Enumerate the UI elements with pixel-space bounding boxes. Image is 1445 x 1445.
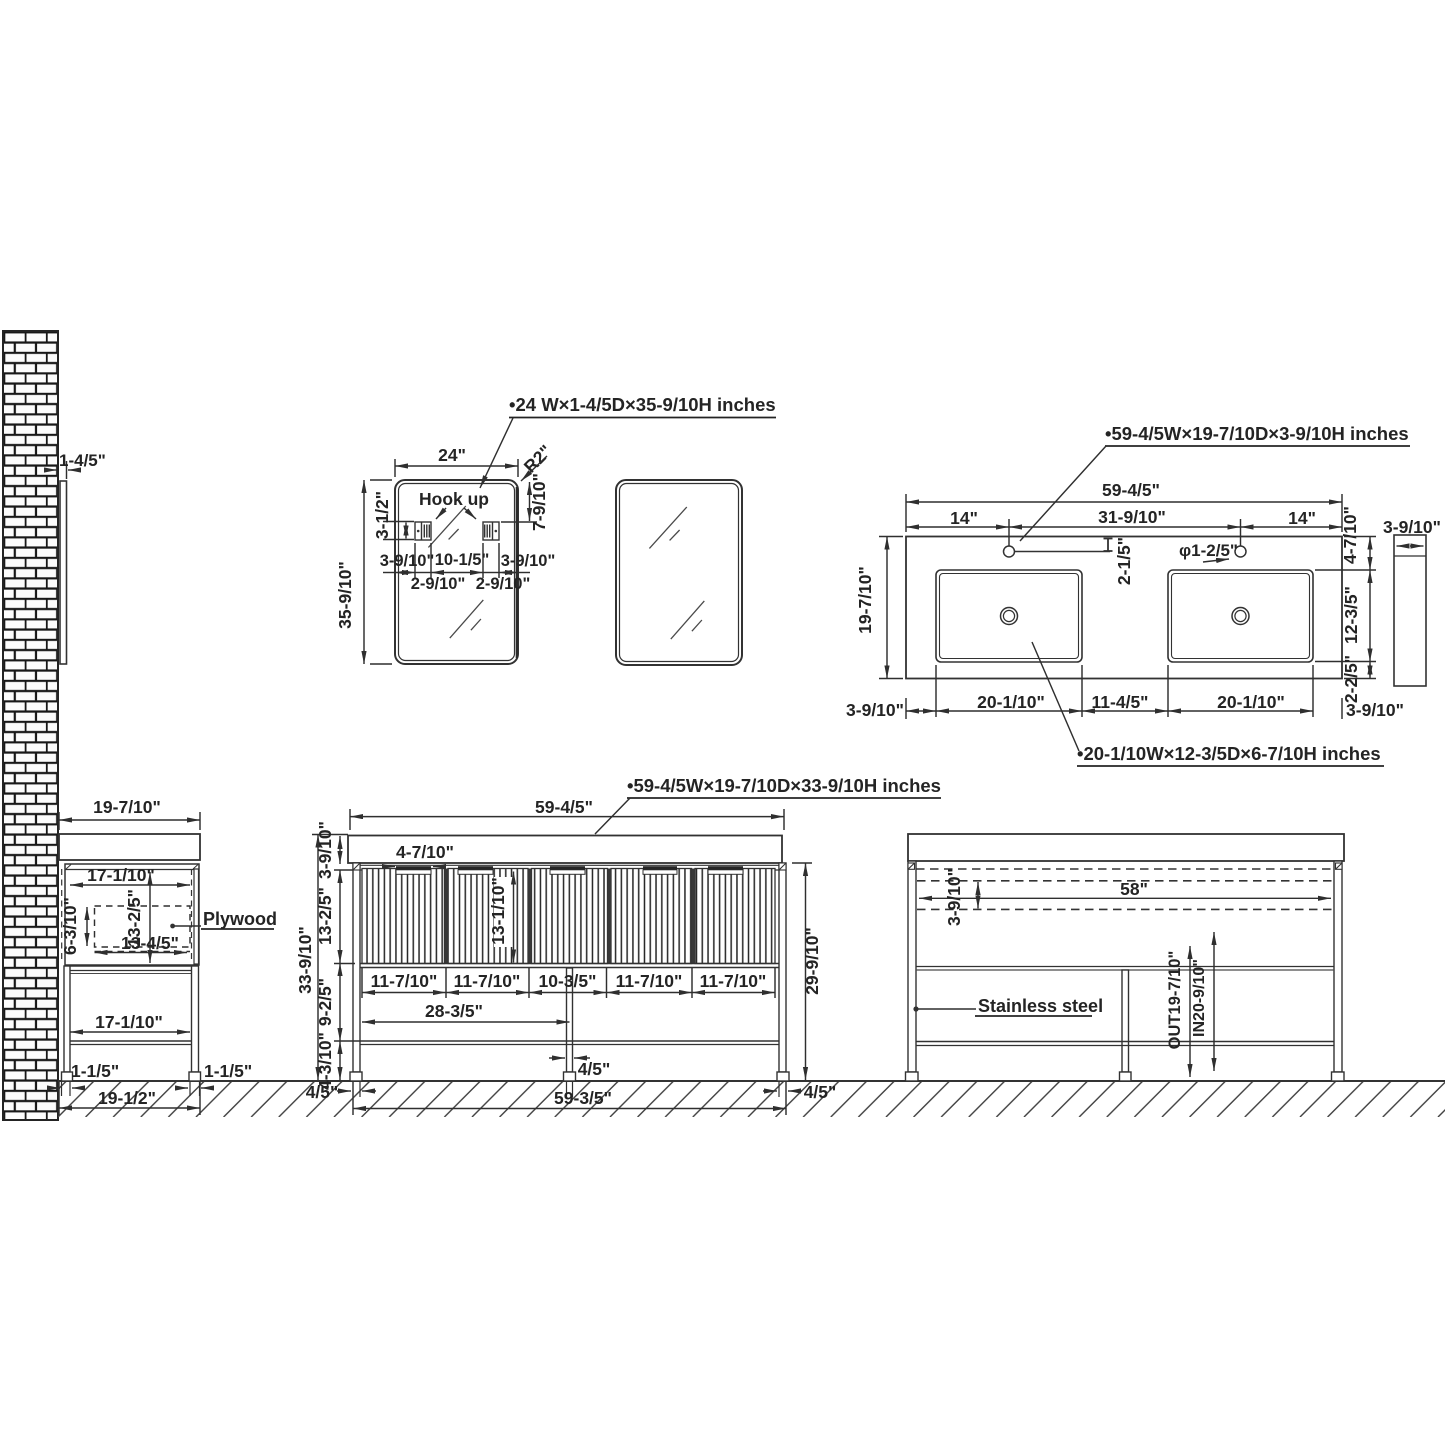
- svg-text:24": 24": [438, 445, 466, 465]
- svg-text:29-9/10": 29-9/10": [802, 927, 822, 995]
- svg-text:28-3/5": 28-3/5": [425, 1001, 483, 1021]
- svg-text:20-1/10": 20-1/10": [977, 692, 1045, 712]
- svg-text:3-9/10": 3-9/10": [380, 552, 435, 570]
- svg-text:3-9/10": 3-9/10": [944, 868, 964, 926]
- svg-text:59-4/5": 59-4/5": [535, 797, 593, 817]
- svg-text:Stainless steel: Stainless steel: [978, 996, 1103, 1016]
- svg-text:3-9/10": 3-9/10": [315, 821, 335, 879]
- svg-text:17-1/10": 17-1/10": [87, 865, 155, 885]
- svg-text:59-4/5": 59-4/5": [1102, 480, 1160, 500]
- svg-text:11-7/10": 11-7/10": [454, 971, 521, 991]
- svg-text:12-3/5": 12-3/5": [1341, 586, 1361, 644]
- svg-text:4/5": 4/5": [578, 1059, 611, 1079]
- svg-text:33-9/10": 33-9/10": [295, 926, 315, 994]
- svg-text:58": 58": [1120, 879, 1148, 899]
- svg-text:19-7/10": 19-7/10": [855, 566, 875, 634]
- svg-text:•24 W×1-4/5D×35-9/10H inches: •24 W×1-4/5D×35-9/10H inches: [509, 394, 776, 415]
- svg-text:1-1/5": 1-1/5": [71, 1061, 119, 1081]
- svg-text:59-3/5": 59-3/5": [554, 1088, 612, 1108]
- svg-text:10-3/5": 10-3/5": [539, 971, 597, 991]
- svg-text:φ1-2/5": φ1-2/5": [1179, 541, 1238, 560]
- svg-text:20-1/10": 20-1/10": [1217, 692, 1285, 712]
- svg-text:4-7/10": 4-7/10": [396, 842, 454, 862]
- svg-text:3-9/10": 3-9/10": [1383, 517, 1441, 537]
- svg-text:2-2/5": 2-2/5": [1341, 655, 1361, 703]
- svg-text:4-7/10": 4-7/10": [1340, 506, 1360, 564]
- svg-text:9-2/5": 9-2/5": [315, 978, 335, 1026]
- svg-text:OUT19-7/10": OUT19-7/10": [1166, 951, 1184, 1050]
- svg-text:11-7/10": 11-7/10": [616, 971, 683, 991]
- svg-text:1-1/5": 1-1/5": [204, 1061, 252, 1081]
- svg-text:2-1/5": 2-1/5": [1114, 537, 1134, 585]
- svg-text:4/5": 4/5": [306, 1082, 339, 1102]
- svg-text:19-7/10": 19-7/10": [93, 797, 161, 817]
- svg-text:13-1/10": 13-1/10": [488, 877, 508, 945]
- svg-text:17-1/10": 17-1/10": [95, 1012, 163, 1032]
- svg-text:13-4/5": 13-4/5": [121, 933, 179, 953]
- svg-text:IN20-9/10": IN20-9/10": [1191, 959, 1208, 1037]
- svg-text:Hook up: Hook up: [419, 489, 489, 509]
- svg-text:6-3/10": 6-3/10": [60, 897, 80, 955]
- svg-text:4/5": 4/5": [804, 1082, 837, 1102]
- svg-text:7-9/10": 7-9/10": [529, 473, 549, 531]
- svg-text:•20-1/10W×12-3/5D×6-7/10H inch: •20-1/10W×12-3/5D×6-7/10H inches: [1077, 743, 1381, 764]
- svg-text:•59-4/5W×19-7/10D×33-9/10H inc: •59-4/5W×19-7/10D×33-9/10H inches: [627, 775, 941, 796]
- svg-text:3-9/10": 3-9/10": [501, 552, 556, 570]
- svg-text:3-9/10": 3-9/10": [846, 700, 904, 720]
- svg-text:11-7/10": 11-7/10": [371, 971, 438, 991]
- svg-text:11-7/10": 11-7/10": [700, 971, 767, 991]
- svg-text:11-4/5": 11-4/5": [1092, 692, 1149, 712]
- svg-text:3-9/10": 3-9/10": [1346, 700, 1404, 720]
- svg-text:2-9/10": 2-9/10": [411, 575, 466, 593]
- svg-text:3-1/2": 3-1/2": [372, 491, 392, 539]
- svg-text:1-4/5": 1-4/5": [59, 451, 106, 470]
- svg-text:2-9/10": 2-9/10": [476, 575, 531, 593]
- svg-text:19-1/2": 19-1/2": [98, 1088, 156, 1108]
- svg-text:•59-4/5W×19-7/10D×3-9/10H inch: •59-4/5W×19-7/10D×3-9/10H inches: [1105, 423, 1409, 444]
- svg-text:14": 14": [1288, 508, 1316, 528]
- svg-text:Plywood: Plywood: [203, 909, 277, 929]
- svg-text:35-9/10": 35-9/10": [335, 561, 355, 629]
- svg-text:31-9/10": 31-9/10": [1098, 507, 1166, 527]
- svg-text:13-2/5": 13-2/5": [315, 887, 335, 945]
- svg-text:14": 14": [950, 508, 978, 528]
- svg-text:10-1/5": 10-1/5": [435, 551, 490, 569]
